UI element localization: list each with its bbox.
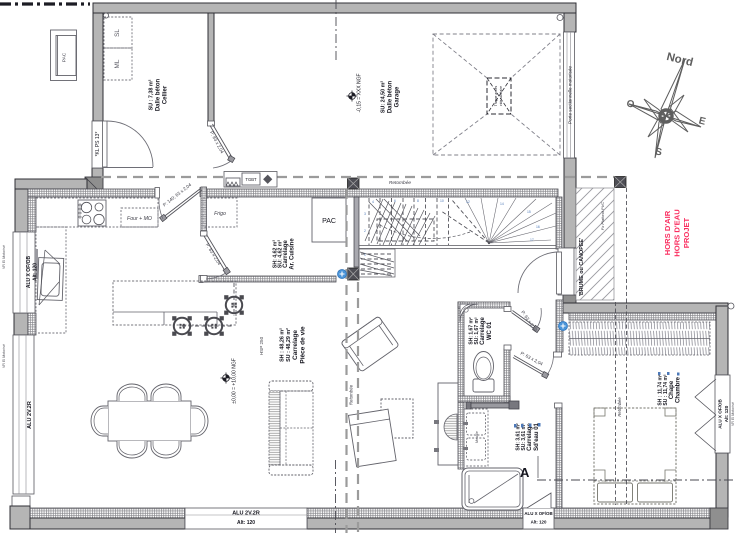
svg-text:*KL PS 13*: *KL PS 13* [95, 132, 101, 157]
svg-text:3: 3 [364, 212, 366, 216]
svg-text:Meuble: Meuble [475, 431, 479, 443]
svg-text:VR El Motorisé: VR El Motorisé [2, 245, 6, 269]
svg-text:16: 16 [536, 225, 540, 229]
svg-text:SH: 1,67 m²: SH: 1,67 m² [469, 317, 475, 345]
svg-text:HORS D'EAU: HORS D'EAU [673, 209, 682, 257]
svg-text:10: 10 [440, 199, 444, 203]
svg-text:Retombée: Retombée [349, 384, 354, 405]
svg-text:Chambre: Chambre [676, 376, 682, 403]
svg-text:Carrelage: Carrelage [292, 330, 299, 360]
svg-text:SH : 48,26 m²: SH : 48,26 m² [280, 328, 286, 362]
svg-text:PAC: PAC [62, 52, 68, 62]
svg-text:VR El Motorisé: VR El Motorisé [2, 344, 6, 368]
svg-text:Dalle béton: Dalle béton [388, 80, 394, 113]
svg-text:WC 01: WC 01 [487, 321, 493, 340]
svg-text:Ar. Cuisine: Ar. Cuisine [290, 238, 296, 270]
svg-text:Fx Plafond PVC: Fx Plafond PVC [600, 202, 605, 231]
svg-text:1: 1 [364, 253, 366, 257]
svg-text:12: 12 [466, 200, 470, 204]
svg-text:Carrelage: Carrelage [283, 239, 289, 267]
svg-text:8: 8 [417, 199, 419, 203]
svg-text:HSP 250: HSP 250 [259, 336, 264, 355]
svg-text:ALU 2V.2R: ALU 2V.2R [232, 511, 260, 517]
svg-text:Retombée: Retombée [389, 180, 411, 186]
svg-text:Dalle béton: Dalle béton [156, 78, 162, 111]
svg-text:TGBT: TGBT [245, 177, 257, 182]
svg-text:6: 6 [394, 199, 396, 203]
svg-text:Porte sectionnelle motorisée: Porte sectionnelle motorisée [568, 66, 573, 124]
svg-text:Retombée: Retombée [617, 397, 622, 417]
svg-text:ML: ML [114, 59, 121, 68]
svg-text:17: 17 [530, 238, 534, 242]
svg-text:Cellier: Cellier [163, 85, 169, 104]
svg-text:SU: 24,50 m²: SU: 24,50 m² [381, 81, 387, 114]
svg-text:Pièce de vie: Pièce de vie [300, 326, 307, 364]
svg-text:SU : 11,74 m²: SU : 11,74 m² [663, 374, 669, 405]
svg-text:SH: 4,62 m²: SH: 4,62 m² [273, 240, 279, 269]
svg-text:-0,15 = XXX NGF: -0,15 = XXX NGF [357, 73, 363, 112]
svg-text:HORS D'AIR: HORS D'AIR [663, 210, 672, 255]
svg-text:Frigo: Frigo [214, 211, 226, 217]
svg-text:Chape: Chape [669, 380, 675, 399]
svg-text:Alt: 120: Alt: 120 [724, 405, 729, 422]
svg-text:SH : 11,74 m²: SH : 11,74 m² [658, 374, 664, 405]
svg-text:Four + MO: Four + MO [127, 216, 152, 222]
svg-text:'BRUME ou CANOPEE': 'BRUME ou CANOPEE' [579, 238, 585, 297]
svg-text:A: A [520, 465, 530, 480]
svg-text:PROJET: PROJET [682, 217, 691, 248]
svg-text:4: 4 [372, 200, 374, 204]
svg-text:PAC: PAC [322, 218, 336, 225]
svg-text:±0,00 = +10,00 NGF: ±0,00 = +10,00 NGF [232, 358, 238, 404]
svg-text:Alt: 120: Alt: 120 [237, 520, 255, 526]
svg-text:VR El Motorisé: VR El Motorisé [731, 402, 735, 426]
svg-text:vide sanitaire: vide sanitaire [499, 86, 503, 106]
svg-text:Alt: 120: Alt: 120 [531, 520, 547, 525]
svg-text:SU : 7,38 m²: SU : 7,38 m² [149, 79, 155, 110]
svg-text:Carrelage: Carrelage [480, 316, 486, 344]
svg-text:SU : 48,29 m²: SU : 48,29 m² [286, 328, 292, 362]
svg-text:ALU X OF/OB: ALU X OF/OB [26, 256, 32, 289]
svg-text:2: 2 [364, 229, 366, 233]
svg-text:ALU 2V.2R: ALU 2V.2R [27, 401, 33, 429]
svg-text:Sd'eau 01: Sd'eau 01 [534, 422, 540, 450]
svg-text:SU: 1,67 m²: SU: 1,67 m² [474, 317, 480, 345]
svg-text:15: 15 [527, 210, 531, 214]
svg-text:ALU X OF/OB: ALU X OF/OB [524, 511, 552, 516]
svg-text:Garage: Garage [395, 86, 401, 107]
svg-text:Alt: 120: Alt: 120 [33, 263, 39, 281]
svg-text:14: 14 [500, 202, 504, 206]
svg-text:SL: SL [114, 29, 121, 37]
svg-text:ALU X OF/OB: ALU X OF/OB [718, 399, 723, 429]
svg-text:Trappe accès: Trappe accès [494, 85, 498, 106]
